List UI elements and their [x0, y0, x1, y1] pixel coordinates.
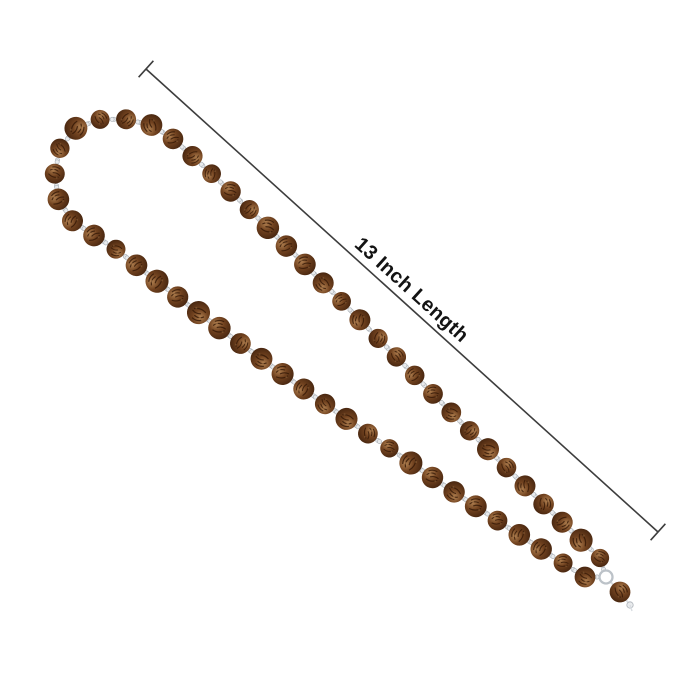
rudraksha-beads [42, 105, 634, 606]
necklace-mala [42, 105, 634, 611]
product-image-canvas: 13 Inch Length [0, 0, 700, 700]
silver-link-chain [54, 117, 630, 605]
silver-junction-ring [600, 571, 613, 584]
product-scene: 13 Inch Length [0, 0, 700, 700]
